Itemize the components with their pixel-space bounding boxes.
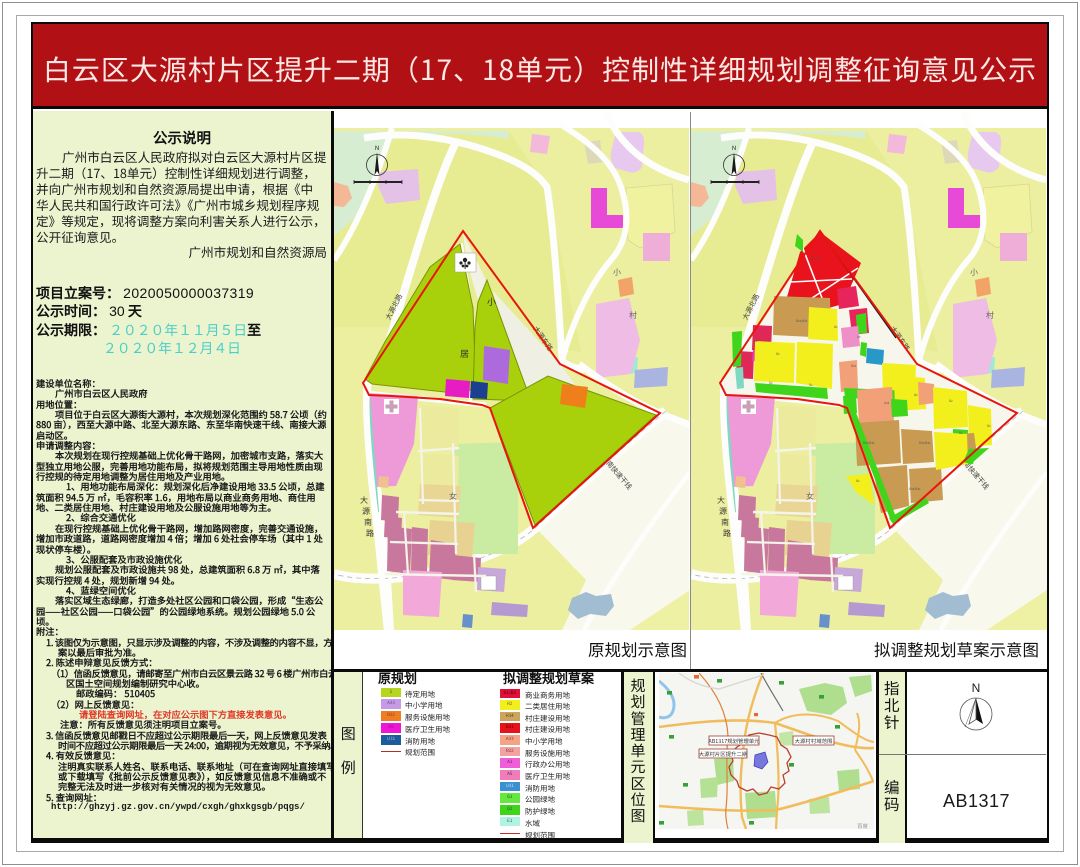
svg-text:源: 源 — [362, 506, 370, 517]
svg-text:R2: R2 — [769, 381, 773, 385]
svg-text:女: 女 — [449, 491, 457, 502]
svg-text:路: 路 — [366, 528, 374, 539]
svg-text:R2: R2 — [987, 424, 991, 428]
svg-text:R2: R2 — [959, 431, 963, 435]
svg-text:拟调整规划草案示意图: 拟调整规划草案示意图 — [874, 637, 1039, 661]
svg-text:村: 村 — [629, 310, 637, 321]
svg-text:R22: R22 — [851, 364, 857, 368]
svg-text:B1/B2: B1/B2 — [811, 257, 820, 261]
svg-text:居: 居 — [460, 347, 469, 360]
svg-text:R2: R2 — [809, 383, 813, 387]
svg-text:A5: A5 — [857, 335, 861, 339]
svg-text:大源村片区提升二期: 大源村片区提升二期 — [699, 750, 748, 758]
svg-text:R2: R2 — [834, 325, 838, 329]
svg-text:R34/B31: R34/B31 — [863, 441, 875, 445]
svg-text:R34/B31: R34/B31 — [909, 487, 921, 491]
svg-text:R34/B31: R34/B31 — [796, 319, 808, 323]
svg-text:R2: R2 — [856, 479, 860, 483]
svg-text:大源村村域范围: 大源村村域范围 — [795, 737, 833, 745]
svg-text:大: 大 — [360, 495, 368, 506]
svg-text:A33: A33 — [884, 401, 889, 405]
svg-text:N: N — [375, 143, 379, 152]
svg-text:R34/B31: R34/B31 — [919, 441, 931, 445]
svg-text:R2: R2 — [776, 352, 780, 356]
svg-text:百度: 百度 — [857, 822, 869, 829]
svg-text:R2: R2 — [949, 399, 953, 403]
svg-text:小: 小 — [613, 267, 621, 278]
svg-text:R2: R2 — [914, 393, 918, 397]
svg-text:小: 小 — [487, 295, 496, 308]
svg-text:AB1317规划管理单元: AB1317规划管理单元 — [708, 737, 760, 745]
svg-text:N: N — [972, 681, 981, 695]
svg-text:A1: A1 — [754, 339, 758, 343]
svg-text:南: 南 — [364, 517, 372, 528]
svg-text:原规划示意图: 原规划示意图 — [588, 637, 687, 661]
